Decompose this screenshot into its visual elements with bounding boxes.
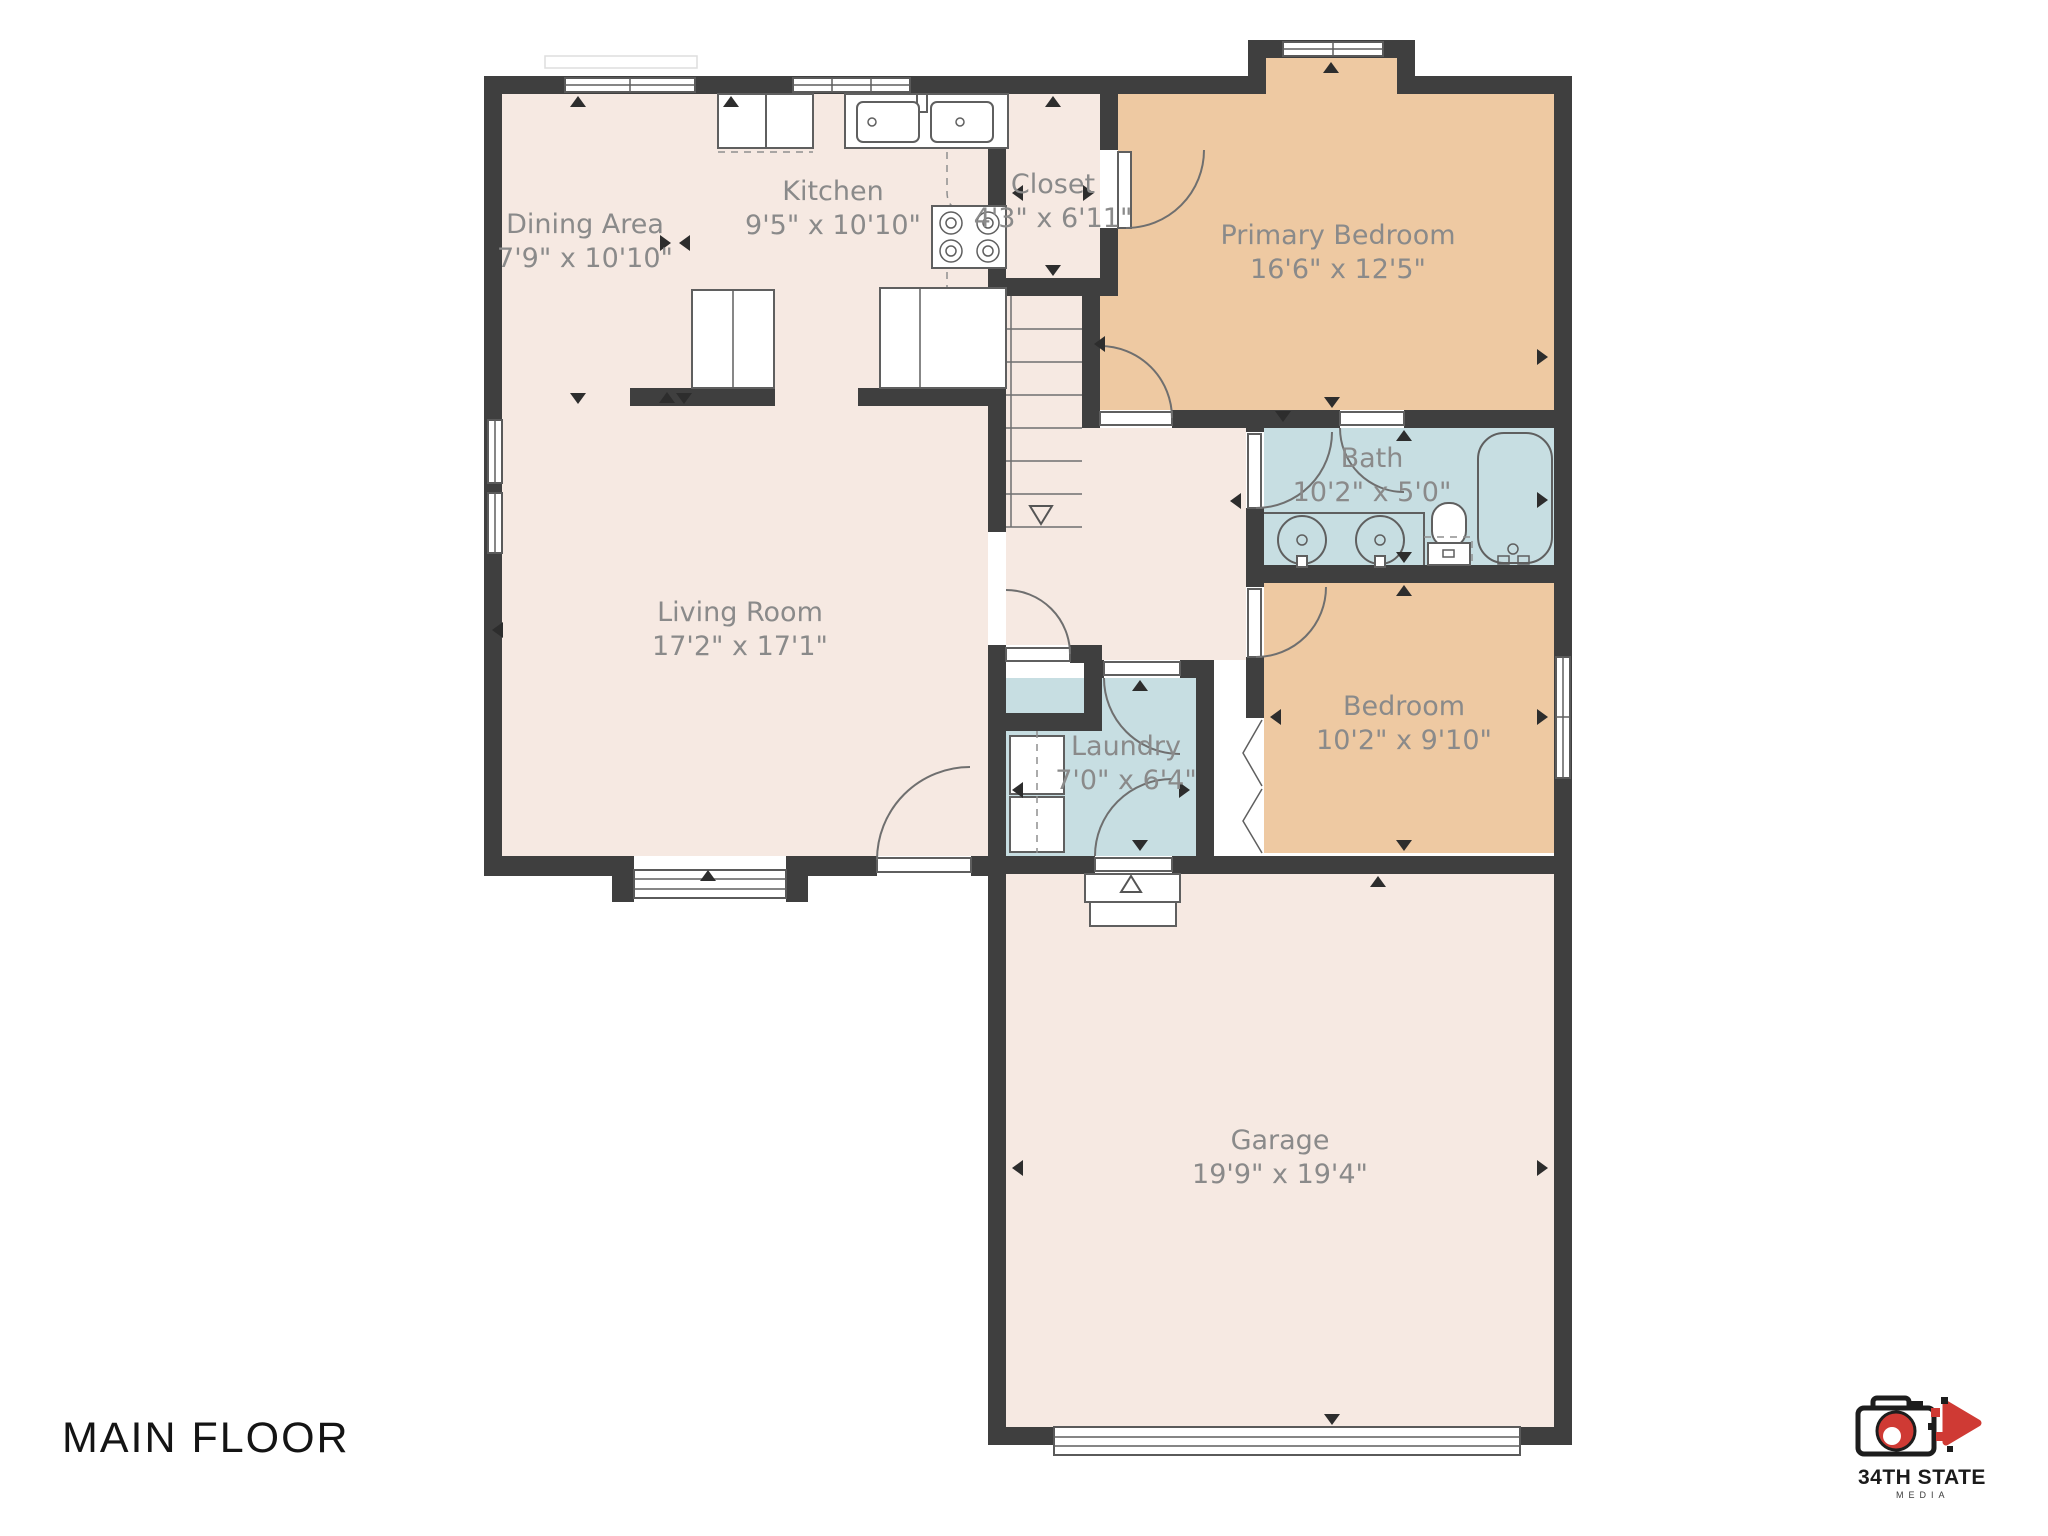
camera-icon <box>1858 1398 1934 1454</box>
room-name: Living Room <box>657 596 823 630</box>
room-name: Laundry <box>1071 730 1181 764</box>
room-label-kitchen: Kitchen 9'5" x 10'10" <box>745 175 921 243</box>
room-dims: 10'2" x 5'0" <box>1293 476 1452 510</box>
living-window-lower <box>488 493 502 553</box>
room-dims: 9'5" x 10'10" <box>745 209 921 243</box>
garage-door <box>1054 1427 1520 1455</box>
kitchen-pantry <box>692 290 774 388</box>
room-name: Closet <box>1011 168 1095 202</box>
room-dims: 4'3" x 6'11" <box>974 202 1133 236</box>
room-dims: 16'6" x 12'5" <box>1250 253 1426 287</box>
room-name: Bath <box>1341 442 1404 476</box>
room-dims: 10'2" x 9'10" <box>1316 724 1492 758</box>
room-label-bath: Bath 10'2" x 5'0" <box>1293 442 1452 510</box>
brand-name: 34TH STATE <box>1843 1466 2023 1490</box>
kitchen-counter-cabinets <box>880 288 1006 388</box>
floor-plan-page: Dining Area 7'9" x 10'10" Kitchen 9'5" x… <box>0 0 2048 1536</box>
kitchen-cabinet <box>718 94 766 148</box>
room-name: Garage <box>1231 1124 1330 1158</box>
room-dims: 19'9" x 19'4" <box>1192 1158 1368 1192</box>
living-window-upper <box>488 420 502 483</box>
room-label-living-room: Living Room 17'2" x 17'1" <box>652 596 828 664</box>
dining-window <box>565 78 695 92</box>
room-dims: 7'0" x 6'4" <box>1055 764 1197 798</box>
room-label-laundry: Laundry 7'0" x 6'4" <box>1055 730 1197 798</box>
kitchen-sink <box>845 94 1008 148</box>
bedroom-window <box>1556 657 1570 778</box>
room-label-bedroom: Bedroom 10'2" x 9'10" <box>1316 690 1492 758</box>
kitchen-cabinet <box>766 94 813 148</box>
room-name: Dining Area <box>506 208 664 242</box>
brand-logo: 34TH STATE MEDIA <box>1843 1390 2023 1501</box>
floor-title: MAIN FLOOR <box>62 1414 350 1462</box>
room-label-primary-bedroom: Primary Bedroom 16'6" x 12'5" <box>1220 219 1455 287</box>
room-label-garage: Garage 19'9" x 19'4" <box>1192 1124 1368 1192</box>
room-name: Kitchen <box>782 175 883 209</box>
primary-bedroom-window <box>1283 42 1383 56</box>
room-dims: 7'9" x 10'10" <box>497 242 673 276</box>
room-name: Primary Bedroom <box>1220 219 1455 253</box>
kitchen-window <box>793 78 910 92</box>
room-label-dining: Dining Area 7'9" x 10'10" <box>497 208 673 276</box>
room-label-closet: Closet 4'3" x 6'11" <box>974 168 1133 236</box>
room-name: Bedroom <box>1343 690 1465 724</box>
room-dims: 17'2" x 17'1" <box>652 630 828 664</box>
entry-steps <box>1085 874 1180 926</box>
deck-outline <box>545 56 697 68</box>
brand-logo-graphic <box>1843 1390 2003 1462</box>
brand-sub: MEDIA <box>1843 1490 2023 1501</box>
